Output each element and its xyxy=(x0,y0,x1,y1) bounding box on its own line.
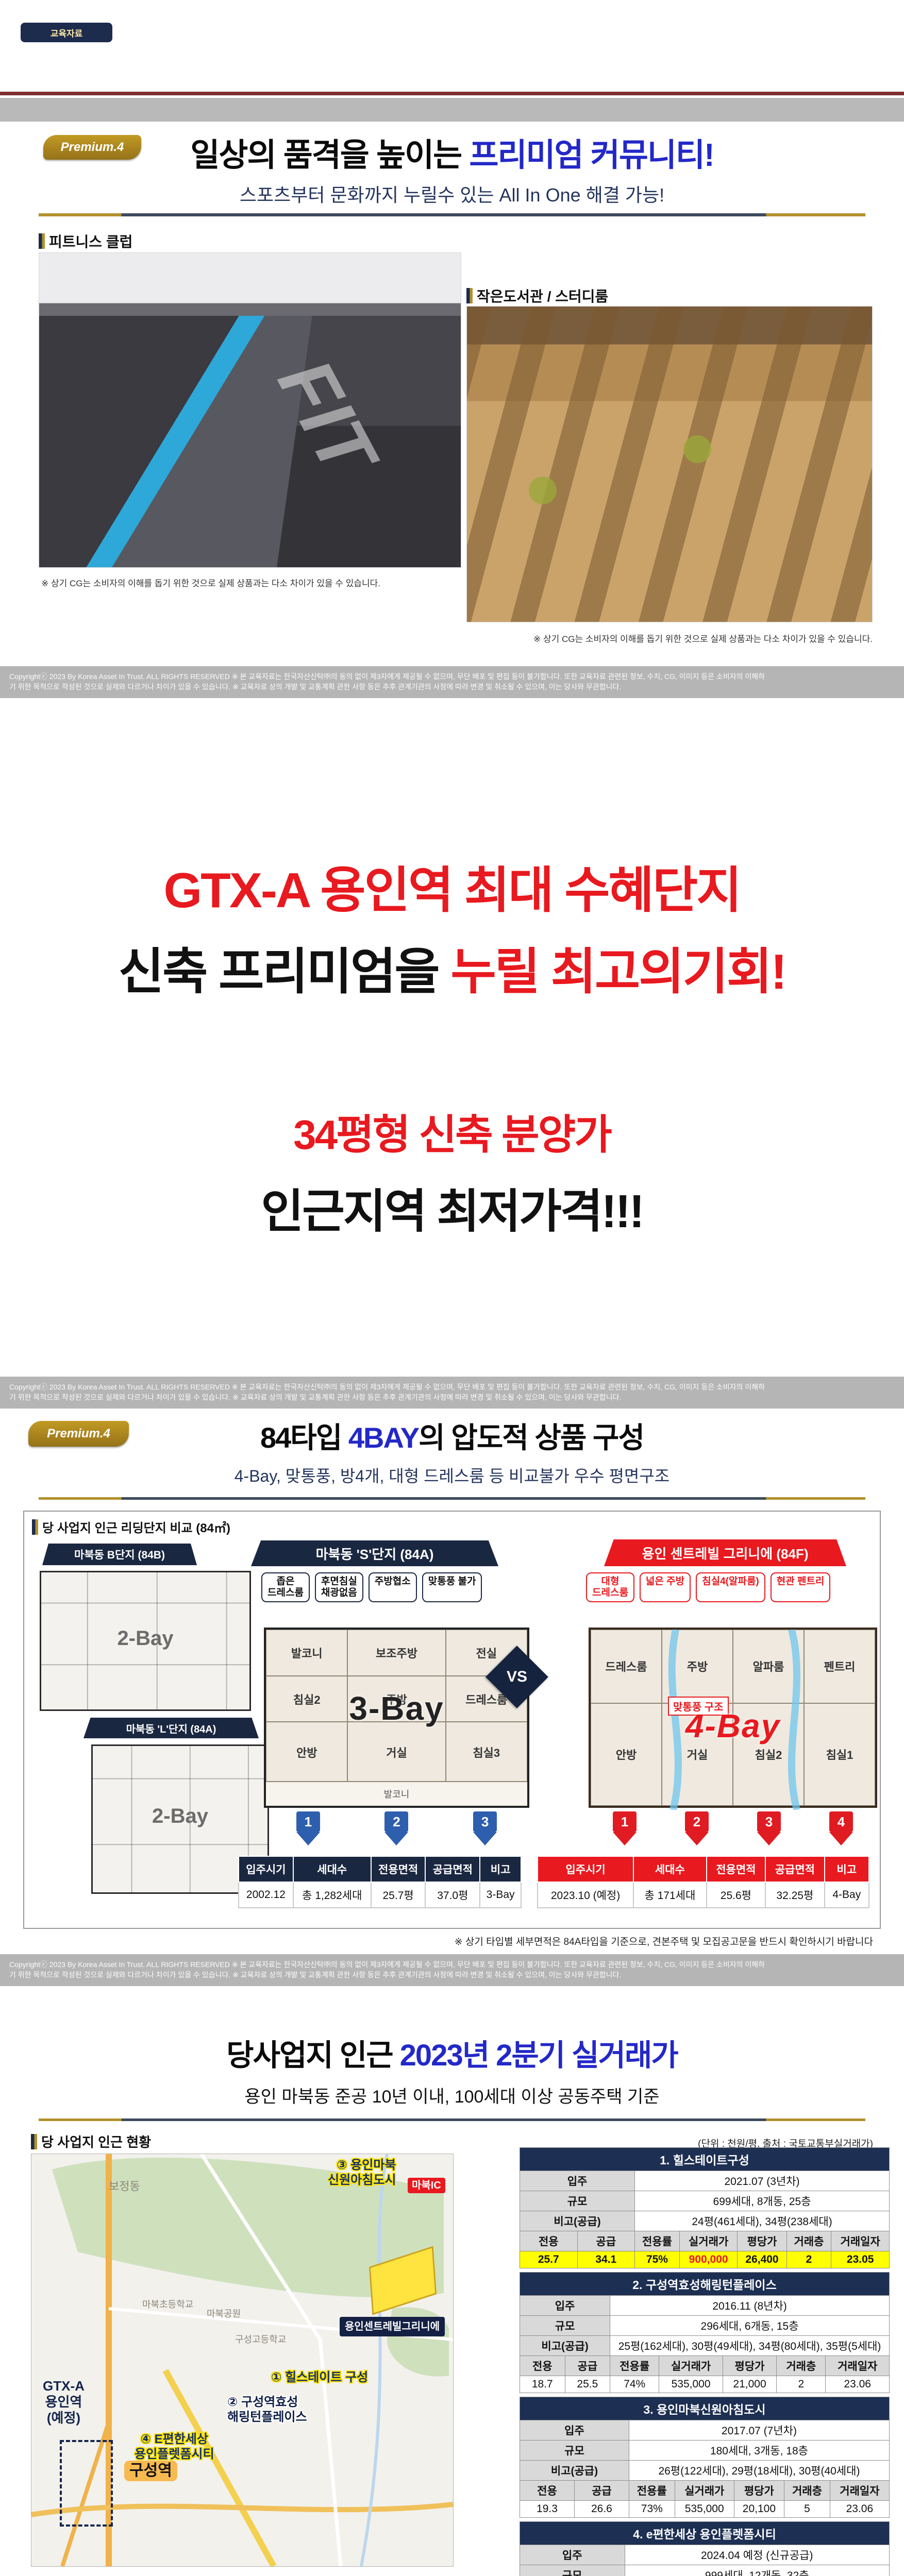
deal-header-row: 전용공급전용률실거래가평당가거래층거래일자 xyxy=(520,2356,890,2376)
room-cell: 주방 xyxy=(662,1630,733,1703)
deal-data-cell: 535,000 xyxy=(675,2501,734,2518)
spec-data-row: 2023.10 (예정)총 171세대 25.6평32.25평 4-Bay xyxy=(538,1882,869,1908)
plan-f-arrows: 1234 xyxy=(589,1811,877,1845)
deal-info-row: 비고(공급)26평(122세대), 29평(18세대), 30평(40세대) xyxy=(520,2461,890,2481)
deal-data-cell: 2 xyxy=(786,2251,831,2268)
compare-label: 당 사업지 인근 리딩단지 비교 (84㎡) xyxy=(32,1518,230,1536)
deal-data-cell: 19.3 xyxy=(520,2501,575,2518)
disclaimer-line2: 기 위한 목적으로 작성된 것으로 실제와 다르거나 차이가 있을 수 있습니다… xyxy=(9,1970,895,1980)
deal-info-row: 입주2017.07 (7년차) xyxy=(520,2420,890,2441)
community-subtitle: 스포츠부터 문화까지 누릴수 있는 All In One 해결 가능! xyxy=(82,180,822,207)
plan-a: 발코니보조주방전실침실2주방드레스룸안방거실침실3 발코니 3-Bay xyxy=(264,1628,529,1808)
arrow-number: 3 xyxy=(757,1811,781,1832)
arrow-number: 1 xyxy=(613,1811,637,1832)
banner-line2-black: 신축 프리미엄을 xyxy=(119,944,451,999)
deal-data-cell: 21,000 xyxy=(723,2376,776,2393)
disclaimer-strip: Copyrightⓒ 2023 By Korea Asset In Trust.… xyxy=(0,1377,904,1409)
map-label: 마북초등학교 xyxy=(142,2299,193,2311)
arrow-number: 2 xyxy=(384,1811,408,1832)
divider xyxy=(39,213,865,216)
numbered-arrow: 4 xyxy=(829,1811,853,1845)
arrow-number: 4 xyxy=(829,1811,853,1832)
bay-title-pre: 84타입 xyxy=(260,1421,348,1454)
bay-note: ※ 상기 타입별 세부면적은 84A타입을 기준으로, 견본주택 및 모집공고문… xyxy=(455,1934,873,1948)
deal-info-value: 25평(162세대), 30평(49세대), 34평(80세대), 35평(5세… xyxy=(610,2336,890,2356)
map-label: 마북IC xyxy=(408,2178,445,2193)
fitness-caption: ※ 상기 CG는 소비자의 이해를 돕기 위한 것으로 실제 상품과는 다소 차… xyxy=(41,576,380,589)
community-title-blue: 프리미엄 커뮤니티! xyxy=(469,138,713,173)
page: 교육자료 Premium.4 일상의 품격을 높이는 프리미엄 커뮤니티! 스포… xyxy=(0,0,904,2576)
deal-data-cell: 18.7 xyxy=(520,2376,565,2393)
room-cell: 펜트리 xyxy=(804,1630,875,1703)
flag-84f: 용인 센트레빌 그리니에 (84F) xyxy=(604,1539,846,1566)
room-cell: 침실3 xyxy=(446,1722,527,1782)
room-cell: 안방 xyxy=(266,1722,347,1782)
bay-title-blue: 4BAY xyxy=(348,1421,418,1454)
divider xyxy=(39,2119,865,2121)
arrow-number: 2 xyxy=(685,1811,709,1832)
deal-data-cell: 26,400 xyxy=(738,2251,786,2268)
top-badge: 교육자료 xyxy=(21,23,112,42)
disclaimer-line2: 기 위한 목적으로 작성된 것으로 실제와 다르거나 차이가 있을 수 있습니다… xyxy=(9,1392,895,1402)
deal-table-title: 4. e편한세상 용인플렛폼시티 xyxy=(520,2522,890,2545)
label-bar-icon xyxy=(39,233,45,249)
fitness-floor-stripe xyxy=(39,316,312,568)
deal-info-key: 규모 xyxy=(520,2441,629,2461)
deal-data-cell: 5 xyxy=(784,2501,830,2518)
deal-data-cell: 2 xyxy=(777,2376,826,2393)
bay-compare-panel: 당 사업지 인근 리딩단지 비교 (84㎡) 마북동 B단지 (84B) 마북동… xyxy=(23,1511,881,1929)
plan-84b-bay: 2-Bay xyxy=(41,1627,249,1650)
deal-header-cell: 공급 xyxy=(577,2231,635,2251)
deal-data-cell: 900,000 xyxy=(679,2251,738,2268)
deal-header-cell: 평당가 xyxy=(738,2231,786,2251)
map-label: ① 힐스테이트 구성 xyxy=(271,2370,368,2385)
deal-info-value: 999세대, 12개동, 32층 xyxy=(625,2565,890,2576)
callout-chip: 대형 드레스룸 xyxy=(586,1572,634,1602)
spec-table-84f: 입주시기세대수 전용면적공급면적 비고 2023.10 (예정)총 171세대 … xyxy=(537,1856,869,1908)
deal-header-cell: 실거래가 xyxy=(675,2481,734,2501)
flag-84a-s: 마북동 'S'단지 (84A) xyxy=(251,1540,498,1566)
vs-text: VS xyxy=(507,1668,527,1686)
deal-header-cell: 거래층 xyxy=(786,2231,831,2251)
deals-title-black: 당사업지 인근 xyxy=(226,2039,399,2072)
map-label: ② 구성역효성 해링턴플레이스 xyxy=(227,2395,307,2425)
deal-data-cell: 25.7 xyxy=(520,2251,578,2268)
banner-line1: GTX-A 용인역 최대 수혜단지 xyxy=(0,850,904,922)
plan-a-arrows: 123 xyxy=(264,1811,529,1845)
deal-info-key: 규모 xyxy=(520,2316,610,2336)
deal-info-row: 비고(공급)24평(461세대), 34평(238세대) xyxy=(520,2211,890,2231)
deal-header-cell: 실거래가 xyxy=(659,2356,723,2376)
callout-chip: 넓은 주방 xyxy=(640,1572,691,1602)
deals-subtitle: 용인 마북동 준공 10년 이내, 100세대 이상 공동주택 기준 xyxy=(82,2082,822,2108)
deal-info-key: 규모 xyxy=(520,2191,635,2211)
callout-chip: 현관 펜트리 xyxy=(771,1572,831,1602)
top-rule xyxy=(0,92,904,95)
banner-line2-red: 누릴 최고의기회! xyxy=(450,944,785,999)
deal-header-row: 전용공급전용률실거래가평당가거래층거래일자 xyxy=(520,2231,890,2251)
disclaimer-strip: Copyrightⓒ 2023 By Korea Asset In Trust.… xyxy=(0,666,904,698)
deals-title: 당사업지 인근 2023년 2분기 실거래가 xyxy=(82,2031,822,2074)
label-bar-icon xyxy=(32,1519,38,1535)
library-chair xyxy=(683,435,711,463)
callout-chip: 맞통풍 불가 xyxy=(422,1572,482,1602)
map-label: ③ 용인마북 신원아침도시 xyxy=(328,2158,396,2188)
callout-chip: 주방협소 xyxy=(369,1572,417,1602)
compare-label-text: 당 사업지 인근 리딩단지 비교 (84㎡) xyxy=(42,1518,230,1536)
bay-title: 84타입 4BAY의 압도적 상품 구성 xyxy=(82,1415,822,1456)
deal-header-cell: 거래일자 xyxy=(830,2481,889,2501)
deal-info-key: 규모 xyxy=(520,2565,625,2576)
deal-info-row: 입주2016.11 (8년차) xyxy=(520,2296,890,2316)
bay-subtitle: 4-Bay, 맞통풍, 방4개, 대형 드레스룸 등 비교불가 우수 평면구조 xyxy=(82,1463,822,1487)
disclaimer-line1: Copyrightⓒ 2023 By Korea Asset In Trust.… xyxy=(9,671,895,682)
deal-table-title: 1. 힐스테이트구성 xyxy=(520,2148,890,2171)
deal-data-cell: 23.06 xyxy=(830,2501,889,2518)
room-cell: 거실 xyxy=(347,1722,445,1782)
map-section-label: 당 사업지 인근 현황 xyxy=(31,2132,151,2151)
deal-info-key: 비고(공급) xyxy=(520,2336,610,2356)
plan-84a-l-bay: 2-Bay xyxy=(93,1805,267,1828)
label-bar-icon xyxy=(31,2134,37,2149)
plan-a-callouts: 좁은 드레스룸후면침실 채광없음주방협소맞통풍 불가 xyxy=(261,1572,529,1602)
plan-a-bay-label: 3-Bay xyxy=(266,1689,527,1727)
deal-header-cell: 전용 xyxy=(520,2356,565,2376)
flag-84a-l: 마북동 'L'단지 (84A) xyxy=(83,1718,259,1738)
disclaimer-line1: Copyrightⓒ 2023 By Korea Asset In Trust.… xyxy=(9,1382,895,1392)
deal-header-cell: 전용률 xyxy=(610,2356,659,2376)
divider xyxy=(39,1497,865,1500)
fitness-label: 피트니스 클럽 xyxy=(39,231,132,251)
library-tables xyxy=(467,307,872,622)
deal-header-cell: 전용률 xyxy=(629,2481,675,2501)
deal-info-value: 180세대, 3개동, 18층 xyxy=(629,2441,889,2461)
deal-info-key: 비고(공급) xyxy=(520,2461,629,2481)
deal-info-value: 699세대, 8개동, 25층 xyxy=(635,2191,890,2211)
library-label-text: 작은도서관 / 스터디룸 xyxy=(477,285,608,306)
deal-table: 3. 용인마북신원아침도시입주2017.07 (7년차)규모180세대, 3개동… xyxy=(520,2397,890,2518)
arrow-tip-icon xyxy=(685,1832,709,1845)
deal-header-cell: 공급 xyxy=(574,2481,629,2501)
deal-table: 1. 힐스테이트구성입주2021.07 (3년차)규모699세대, 8개동, 2… xyxy=(520,2147,890,2268)
callout-chip: 후면침실 채광없음 xyxy=(315,1572,363,1602)
map-label: 보정동 xyxy=(109,2180,140,2193)
deal-info-row: 입주2024.04 예정 (신규공급) xyxy=(520,2545,890,2565)
numbered-arrow: 3 xyxy=(757,1811,781,1845)
map-label: GTX-A 용인역 (예정) xyxy=(43,2378,85,2427)
bay-title-post: 의 압도적 상품 구성 xyxy=(418,1421,644,1454)
deal-table-title-row: 4. e편한세상 용인플렛폼시티 xyxy=(520,2522,890,2545)
fitness-photo: FIT xyxy=(39,252,461,568)
deal-data-cell: 23.06 xyxy=(826,2376,890,2393)
deal-tables: 1. 힐스테이트구성입주2021.07 (3년차)규모699세대, 8개동, 2… xyxy=(520,2147,890,2576)
callout-chip: 좁은 드레스룸 xyxy=(261,1572,310,1602)
disclaimer-line1: Copyrightⓒ 2023 By Korea Asset In Trust.… xyxy=(9,1959,895,1970)
disclaimer-strip: Copyrightⓒ 2023 By Korea Asset In Trust.… xyxy=(0,1954,904,1986)
map-label: 마북공원 xyxy=(207,2309,241,2320)
map-label: ④ E편한세상 용인플렛폼시티 xyxy=(135,2432,214,2462)
deal-table-title: 2. 구성역효성해링턴플레이스 xyxy=(520,2273,890,2296)
library-caption: ※ 상기 CG는 소비자의 이해를 돕기 위한 것으로 실제 상품과는 다소 차… xyxy=(466,632,873,645)
deal-header-cell: 거래층 xyxy=(784,2481,830,2501)
deal-header-row: 전용공급전용률실거래가평당가거래층거래일자 xyxy=(520,2481,890,2501)
deal-data-cell: 74% xyxy=(610,2376,659,2393)
deal-data-cell: 25.5 xyxy=(565,2376,610,2393)
arrow-tip-icon xyxy=(613,1832,637,1845)
deal-header-cell: 전용 xyxy=(520,2231,578,2251)
numbered-arrow: 2 xyxy=(685,1811,709,1845)
deal-data-row: 25.734.175%900,00026,400223.05 xyxy=(520,2251,890,2268)
flag-84b: 마북동 B단지 (84B) xyxy=(42,1544,197,1565)
banner-line4: 인근지역 최저가격!!! xyxy=(0,1174,904,1241)
gtx-station-outline xyxy=(60,2440,113,2527)
deal-info-value: 24평(461세대), 34평(238세대) xyxy=(635,2211,890,2231)
community-title-black: 일상의 품격을 높이는 xyxy=(190,138,469,173)
label-bar-icon xyxy=(466,288,473,303)
area-map: 보정동GTX-A 용인역 (예정)구성역마북IC③ 용인마북 신원아침도시① 힐… xyxy=(31,2154,454,2567)
arrow-tip-icon xyxy=(757,1832,781,1845)
deal-info-key: 비고(공급) xyxy=(520,2211,635,2231)
banner-line3: 34평형 신축 분양가 xyxy=(0,1101,904,1161)
deal-info-row: 입주2021.07 (3년차) xyxy=(520,2171,890,2191)
arrow-number: 1 xyxy=(296,1811,320,1832)
deal-info-value: 296세대, 6개동, 15층 xyxy=(610,2316,890,2336)
arrow-tip-icon xyxy=(296,1832,320,1845)
deal-header-cell: 평당가 xyxy=(723,2356,776,2376)
deal-data-row: 18.725.574%535,00021,000223.06 xyxy=(520,2376,890,2393)
deal-header-cell: 전용 xyxy=(520,2481,575,2501)
deal-info-value: 2017.07 (7년차) xyxy=(629,2420,889,2441)
spec-data-row: 2002.12총 1,282세대 25.7평37.0평 3-Bay xyxy=(239,1882,521,1908)
spec-table-84a: 입주시기세대수 전용면적공급면적 비고 2002.12총 1,282세대 25.… xyxy=(238,1856,522,1908)
disclaimer-line2: 기 위한 목적으로 작성된 것으로 실제와 다르거나 차이가 있을 수 있습니다… xyxy=(9,682,895,692)
deal-header-cell: 공급 xyxy=(565,2356,610,2376)
map-label: 구성고등학교 xyxy=(235,2334,286,2346)
numbered-arrow: 1 xyxy=(296,1811,320,1845)
room-cell: 드레스룸 xyxy=(591,1630,662,1703)
banner-line2: 신축 프리미엄을 누릴 최고의기회! xyxy=(0,931,904,1003)
library-photo xyxy=(466,306,873,622)
deal-info-value: 2016.11 (8년차) xyxy=(610,2296,890,2316)
numbered-arrow: 3 xyxy=(473,1811,497,1845)
deal-table-title-row: 3. 용인마북신원아침도시 xyxy=(520,2397,890,2420)
deal-header-cell: 거래일자 xyxy=(831,2231,890,2251)
deal-info-row: 규모180세대, 3개동, 18층 xyxy=(520,2441,890,2461)
deal-table: 2. 구성역효성해링턴플레이스입주2016.11 (8년차)규모296세대, 6… xyxy=(520,2272,890,2393)
deal-info-row: 비고(공급)25평(162세대), 30평(49세대), 34평(80세대), … xyxy=(520,2336,890,2356)
fitness-label-text: 피트니스 클럽 xyxy=(49,231,132,251)
spec-header-row: 입주시기세대수 전용면적공급면적 비고 xyxy=(239,1856,521,1882)
arrow-tip-icon xyxy=(829,1832,853,1845)
room-cell: 보조주방 xyxy=(347,1630,445,1676)
deal-info-key: 입주 xyxy=(520,2545,625,2565)
deal-table-title-row: 1. 힐스테이트구성 xyxy=(520,2148,890,2171)
deals-title-blue: 2023년 2분기 실거래가 xyxy=(400,2039,678,2072)
deal-info-value: 2021.07 (3년차) xyxy=(635,2171,890,2191)
plan-f: 드레스룸주방알파룸펜트리안방거실침실2침실1 맞통풍 구조 4-Bay xyxy=(589,1628,877,1808)
deal-table-title: 3. 용인마북신원아침도시 xyxy=(520,2397,890,2420)
plan-84b: 2-Bay xyxy=(40,1571,251,1711)
deal-info-key: 입주 xyxy=(520,2171,635,2191)
deal-info-row: 규모999세대, 12개동, 32층 xyxy=(520,2565,890,2576)
arrow-tip-icon xyxy=(473,1832,497,1845)
plan-a-balcony: 발코니 xyxy=(266,1781,527,1806)
map-section-label-text: 당 사업지 인근 현황 xyxy=(41,2132,151,2151)
room-cell: 알파룸 xyxy=(733,1630,804,1703)
deal-info-key: 입주 xyxy=(520,2296,610,2316)
deal-data-cell: 73% xyxy=(629,2501,675,2518)
disclaimer-strip-top xyxy=(0,98,904,122)
deal-table-title-row: 2. 구성역효성해링턴플레이스 xyxy=(520,2273,890,2296)
map-label: 용인센트레빌그리니에 xyxy=(340,2317,445,2336)
deal-info-row: 규모699세대, 8개동, 25층 xyxy=(520,2191,890,2211)
deal-data-cell: 23.05 xyxy=(831,2251,890,2268)
deal-table: 4. e편한세상 용인플렛폼시티입주2024.04 예정 (신규공급)규모999… xyxy=(520,2521,890,2576)
arrow-number: 3 xyxy=(473,1811,497,1832)
room-cell: 발코니 xyxy=(266,1630,347,1676)
numbered-arrow: 1 xyxy=(613,1811,637,1845)
arrow-tip-icon xyxy=(384,1832,408,1845)
plan-f-bay-label: 4-Bay xyxy=(591,1707,875,1745)
deal-header-cell: 거래층 xyxy=(777,2356,826,2376)
deal-info-value: 2024.04 예정 (신규공급) xyxy=(625,2545,890,2565)
deal-info-value: 26평(122세대), 29평(18세대), 30평(40세대) xyxy=(629,2461,889,2481)
deal-header-cell: 평당가 xyxy=(734,2481,784,2501)
plan-f-callouts: 대형 드레스룸넓은 주방침실4(알파룸)현관 펜트리 xyxy=(586,1572,875,1602)
deal-info-key: 입주 xyxy=(520,2420,629,2441)
deal-data-cell: 34.1 xyxy=(577,2251,635,2268)
deal-data-cell: 20,100 xyxy=(734,2501,784,2518)
deal-info-row: 규모296세대, 6개동, 15층 xyxy=(520,2316,890,2336)
deal-data-cell: 75% xyxy=(635,2251,680,2268)
numbered-arrow: 2 xyxy=(384,1811,408,1845)
spec-header-row: 입주시기세대수 전용면적공급면적 비고 xyxy=(538,1856,869,1882)
map-label: 구성역 xyxy=(124,2461,177,2481)
library-label: 작은도서관 / 스터디룸 xyxy=(466,285,608,306)
library-chair xyxy=(529,477,557,504)
community-title: 일상의 품격을 높이는 프리미엄 커뮤니티! xyxy=(82,129,822,175)
deal-header-cell: 거래일자 xyxy=(826,2356,890,2376)
deal-data-cell: 26.6 xyxy=(574,2501,629,2518)
deal-header-cell: 전용률 xyxy=(635,2231,680,2251)
callout-chip: 침실4(알파룸) xyxy=(696,1572,765,1602)
deal-data-row: 19.326.673%535,00020,100523.06 xyxy=(520,2501,890,2518)
deal-header-cell: 실거래가 xyxy=(679,2231,738,2251)
deal-data-cell: 535,000 xyxy=(659,2376,723,2393)
